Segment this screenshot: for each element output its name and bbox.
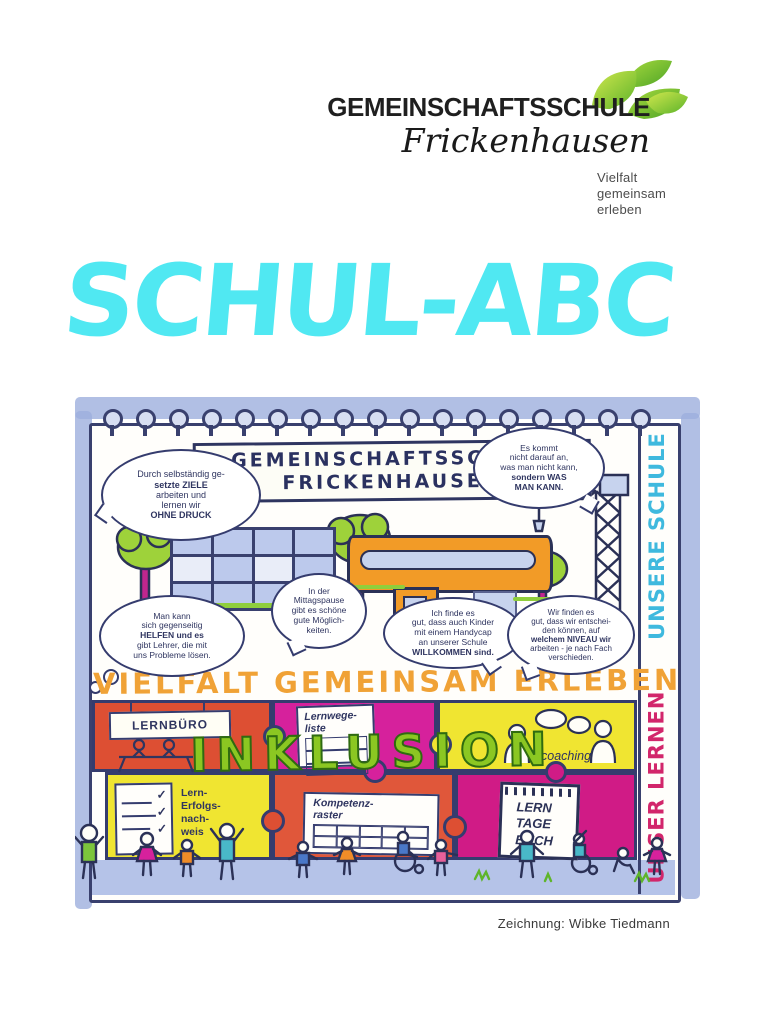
speech-bubble-kann: Es kommt nicht darauf an, was man nicht … <box>473 427 605 509</box>
ring-icon <box>598 409 618 429</box>
bubble-line: MAN KANN. <box>515 483 564 493</box>
ring-icon <box>400 409 420 429</box>
tagline-line: erleben <box>597 202 666 218</box>
ring-icon <box>367 409 387 429</box>
tagline-line: Vielfalt <box>597 170 666 186</box>
speech-bubble-ziele: Durch selbständig ge- setzte ZIELE arbei… <box>101 449 261 541</box>
ring-icon <box>565 409 585 429</box>
sign-hangline <box>130 702 132 712</box>
ring-icon <box>235 409 255 429</box>
bubble-line: arbeiten - je nach Fach <box>530 644 612 653</box>
school-place: Frickenhausen <box>300 122 650 160</box>
drawing-credit: Zeichnung: Wibke Tiedmann <box>470 916 670 931</box>
ring-icon <box>433 409 453 429</box>
ring-icon <box>532 409 552 429</box>
ring-icon <box>301 409 321 429</box>
school-logo-text: GEMEINSCHAFTSSCHULE Frickenhausen <box>300 94 650 160</box>
side-label-text: UNSERE SCHULE <box>645 432 669 640</box>
ring-icon <box>169 409 189 429</box>
bubble-line: Durch selbständig ge- <box>137 469 225 479</box>
bubble-line: Wir finden es <box>548 608 595 617</box>
children-row-illustration <box>75 817 675 899</box>
ring-icon <box>466 409 486 429</box>
bubble-line: keiten. <box>306 626 331 636</box>
ring-icon <box>268 409 288 429</box>
ring-icon <box>499 409 519 429</box>
label-line: Erfolgs- <box>181 800 221 813</box>
window-band <box>360 550 536 570</box>
ring-icon <box>103 409 123 429</box>
ring-icon <box>136 409 156 429</box>
watercolor-right-band <box>681 413 700 899</box>
inklusion-text: INKLUSION <box>153 721 594 783</box>
page-title: SCHUL-ABC <box>59 244 709 359</box>
bubble-line: gut, dass wir entschei- <box>531 617 611 626</box>
bubble-line: welchem NIVEAU wir <box>531 635 611 644</box>
side-label-unsere-schule: UNSERE SCHULE <box>638 433 675 638</box>
bubble-line: uns Probleme lösen. <box>133 651 211 661</box>
bubble-line: WILLKOMMEN sind. <box>412 648 494 658</box>
bubble-line: lernen wir <box>161 500 200 510</box>
spiral-binding <box>103 409 651 429</box>
ring-icon <box>202 409 222 429</box>
ring-icon <box>631 409 651 429</box>
document-page: GEMEINSCHAFTSSCHULE Frickenhausen Vielfa… <box>0 0 770 1024</box>
banner-line: FRICKENHAUSEN <box>282 470 501 495</box>
speech-bubble-willkommen: Ich finde es gut, dass auch Kinder mit e… <box>383 597 523 669</box>
thought-bubble-helfen: Man kann sich gegenseitig HELFEN und es … <box>99 595 245 677</box>
bubble-line: OHNE DRUCK <box>150 510 211 520</box>
school-name: GEMEINSCHAFTSSCHULE <box>300 94 650 120</box>
school-tagline: Vielfalt gemeinsam erleben <box>597 170 666 218</box>
bubble-line: den können, auf <box>542 626 599 635</box>
tagline-line: gemeinsam <box>597 186 666 202</box>
bubble-line: arbeiten und <box>156 490 206 500</box>
school-illustration: GEMEINSCHAFTSSCHULE FRICKENHAUSEN Durch … <box>75 397 700 915</box>
ring-icon <box>334 409 354 429</box>
speech-bubble-niveau: Wir finden es gut, dass wir entschei- de… <box>507 595 635 675</box>
speech-bubble-mittagspause: In der Mittagspause gibt es schöne gute … <box>271 573 367 649</box>
label-line: Lern- <box>181 787 221 800</box>
bubble-line: setzte ZIELE <box>154 480 208 490</box>
bubble-line: verschieden. <box>548 653 593 662</box>
